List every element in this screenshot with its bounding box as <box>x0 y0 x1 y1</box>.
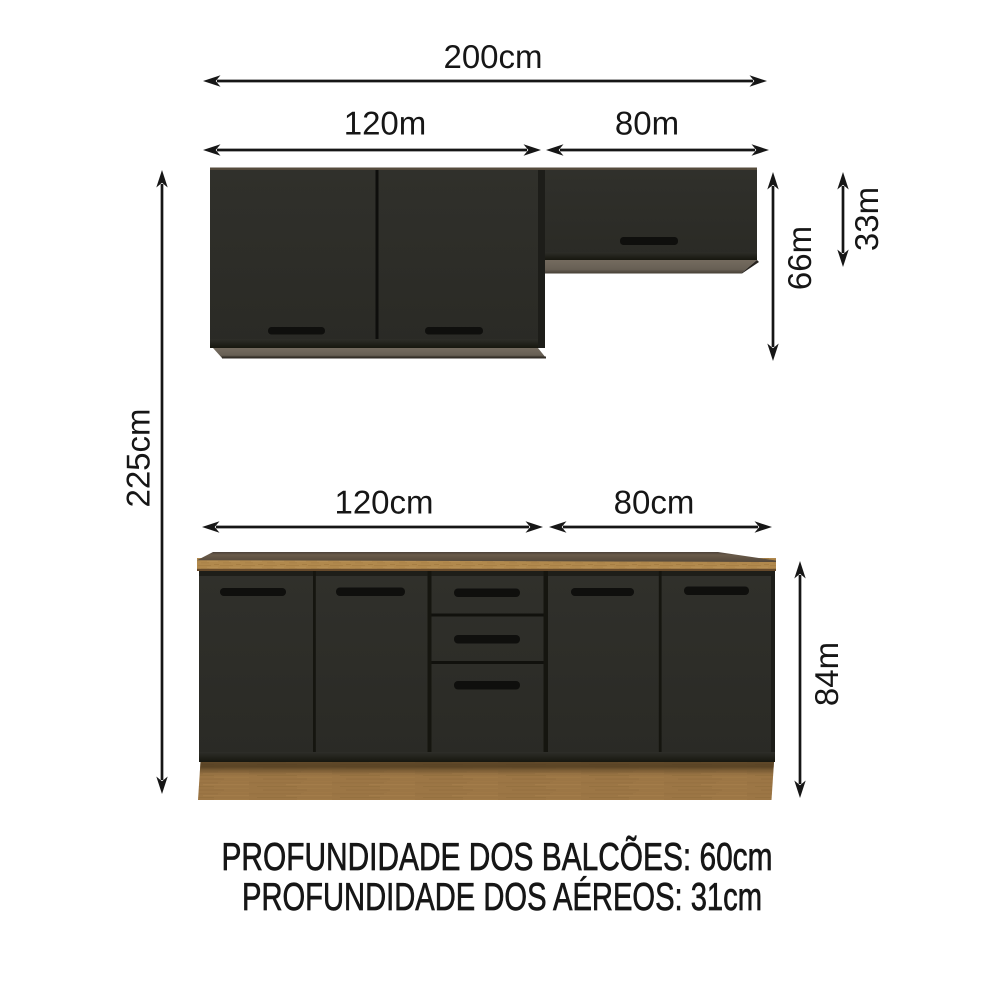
svg-text:33m: 33m <box>848 187 885 251</box>
svg-text:PROFUNDIDADE DOS AÉREOS: 31cm: PROFUNDIDADE DOS AÉREOS: 31cm <box>242 876 762 919</box>
svg-text:120m: 120m <box>344 105 427 142</box>
svg-text:200cm: 200cm <box>443 38 542 75</box>
svg-text:80cm: 80cm <box>614 484 695 521</box>
svg-text:84m: 84m <box>808 642 845 706</box>
svg-text:120cm: 120cm <box>334 484 433 521</box>
svg-text:PROFUNDIDADE DOS BALCÕES: 60cm: PROFUNDIDADE DOS BALCÕES: 60cm <box>222 835 773 879</box>
svg-text:66m: 66m <box>781 226 818 290</box>
svg-text:225cm: 225cm <box>120 408 157 507</box>
svg-text:80m: 80m <box>615 105 679 142</box>
